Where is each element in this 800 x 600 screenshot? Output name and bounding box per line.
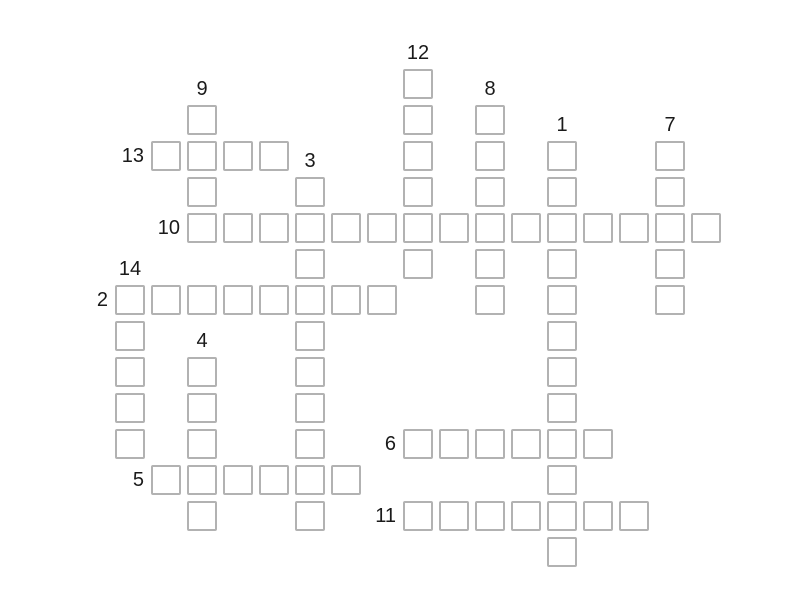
crossword-cell[interactable] bbox=[187, 501, 217, 531]
crossword-cell[interactable] bbox=[115, 429, 145, 459]
crossword-cell[interactable] bbox=[295, 393, 325, 423]
crossword-cell[interactable] bbox=[403, 429, 433, 459]
crossword-cell[interactable] bbox=[223, 141, 253, 171]
crossword-grid: 1234567891011121314 bbox=[0, 0, 800, 600]
crossword-cell[interactable] bbox=[259, 285, 289, 315]
crossword-cell[interactable] bbox=[547, 393, 577, 423]
crossword-cell[interactable] bbox=[475, 213, 505, 243]
crossword-cell[interactable] bbox=[475, 501, 505, 531]
crossword-cell[interactable] bbox=[259, 213, 289, 243]
crossword-cell[interactable] bbox=[223, 285, 253, 315]
crossword-cell[interactable] bbox=[511, 501, 541, 531]
crossword-cell[interactable] bbox=[511, 213, 541, 243]
crossword-cell[interactable] bbox=[187, 465, 217, 495]
crossword-cell[interactable] bbox=[187, 285, 217, 315]
crossword-cell[interactable] bbox=[439, 429, 469, 459]
crossword-cell[interactable] bbox=[367, 213, 397, 243]
crossword-cell[interactable] bbox=[115, 285, 145, 315]
clue-number-label: 3 bbox=[280, 151, 340, 171]
crossword-cell[interactable] bbox=[655, 141, 685, 171]
crossword-cell[interactable] bbox=[547, 357, 577, 387]
crossword-cell[interactable] bbox=[223, 465, 253, 495]
clue-number-label: 10 bbox=[130, 213, 180, 243]
crossword-cell[interactable] bbox=[367, 285, 397, 315]
clue-number-label: 6 bbox=[346, 429, 396, 459]
crossword-cell[interactable] bbox=[583, 501, 613, 531]
crossword-cell[interactable] bbox=[403, 105, 433, 135]
crossword-cell[interactable] bbox=[403, 249, 433, 279]
clue-number-label: 13 bbox=[94, 141, 144, 171]
crossword-cell[interactable] bbox=[475, 285, 505, 315]
crossword-cell[interactable] bbox=[187, 141, 217, 171]
crossword-cell[interactable] bbox=[475, 105, 505, 135]
crossword-cell[interactable] bbox=[331, 285, 361, 315]
crossword-cell[interactable] bbox=[547, 285, 577, 315]
crossword-cell[interactable] bbox=[259, 141, 289, 171]
crossword-cell[interactable] bbox=[295, 213, 325, 243]
crossword-cell[interactable] bbox=[187, 105, 217, 135]
crossword-cell[interactable] bbox=[619, 501, 649, 531]
clue-number-label: 7 bbox=[640, 115, 700, 135]
crossword-cell[interactable] bbox=[115, 357, 145, 387]
clue-number-label: 11 bbox=[346, 501, 396, 531]
crossword-cell[interactable] bbox=[475, 249, 505, 279]
crossword-cell[interactable] bbox=[403, 501, 433, 531]
crossword-cell[interactable] bbox=[547, 249, 577, 279]
crossword-cell[interactable] bbox=[295, 321, 325, 351]
crossword-cell[interactable] bbox=[403, 69, 433, 99]
crossword-cell[interactable] bbox=[655, 249, 685, 279]
clue-number-label: 4 bbox=[172, 331, 232, 351]
crossword-cell[interactable] bbox=[547, 465, 577, 495]
crossword-cell[interactable] bbox=[223, 213, 253, 243]
crossword-cell[interactable] bbox=[403, 177, 433, 207]
crossword-cell[interactable] bbox=[583, 429, 613, 459]
crossword-cell[interactable] bbox=[583, 213, 613, 243]
crossword-cell[interactable] bbox=[295, 357, 325, 387]
crossword-cell[interactable] bbox=[547, 321, 577, 351]
crossword-cell[interactable] bbox=[151, 141, 181, 171]
crossword-cell[interactable] bbox=[691, 213, 721, 243]
crossword-cell[interactable] bbox=[151, 285, 181, 315]
clue-number-label: 12 bbox=[388, 43, 448, 63]
clue-number-label: 1 bbox=[532, 115, 592, 135]
clue-number-label: 9 bbox=[172, 79, 232, 99]
crossword-cell[interactable] bbox=[331, 213, 361, 243]
crossword-cell[interactable] bbox=[295, 465, 325, 495]
crossword-cell[interactable] bbox=[475, 177, 505, 207]
crossword-cell[interactable] bbox=[655, 213, 685, 243]
crossword-cell[interactable] bbox=[475, 141, 505, 171]
crossword-cell[interactable] bbox=[295, 285, 325, 315]
crossword-cell[interactable] bbox=[187, 357, 217, 387]
clue-number-label: 8 bbox=[460, 79, 520, 99]
crossword-cell[interactable] bbox=[475, 429, 505, 459]
crossword-cell[interactable] bbox=[547, 177, 577, 207]
crossword-cell[interactable] bbox=[115, 393, 145, 423]
crossword-cell[interactable] bbox=[187, 393, 217, 423]
crossword-cell[interactable] bbox=[295, 429, 325, 459]
crossword-cell[interactable] bbox=[295, 177, 325, 207]
crossword-cell[interactable] bbox=[187, 213, 217, 243]
crossword-cell[interactable] bbox=[259, 465, 289, 495]
crossword-cell[interactable] bbox=[403, 141, 433, 171]
crossword-cell[interactable] bbox=[151, 465, 181, 495]
clue-number-label: 2 bbox=[58, 285, 108, 315]
crossword-cell[interactable] bbox=[547, 537, 577, 567]
crossword-cell[interactable] bbox=[115, 321, 145, 351]
crossword-cell[interactable] bbox=[403, 213, 433, 243]
crossword-cell[interactable] bbox=[439, 501, 469, 531]
crossword-cell[interactable] bbox=[295, 501, 325, 531]
crossword-cell[interactable] bbox=[439, 213, 469, 243]
crossword-cell[interactable] bbox=[331, 465, 361, 495]
clue-number-label: 14 bbox=[100, 259, 160, 279]
crossword-cell[interactable] bbox=[619, 213, 649, 243]
crossword-cell[interactable] bbox=[655, 285, 685, 315]
crossword-cell[interactable] bbox=[511, 429, 541, 459]
crossword-cell[interactable] bbox=[187, 429, 217, 459]
crossword-cell[interactable] bbox=[295, 249, 325, 279]
crossword-cell[interactable] bbox=[547, 213, 577, 243]
clue-number-label: 5 bbox=[94, 465, 144, 495]
crossword-cell[interactable] bbox=[655, 177, 685, 207]
crossword-cell[interactable] bbox=[187, 177, 217, 207]
crossword-cell[interactable] bbox=[547, 501, 577, 531]
crossword-cell[interactable] bbox=[547, 141, 577, 171]
crossword-cell[interactable] bbox=[547, 429, 577, 459]
